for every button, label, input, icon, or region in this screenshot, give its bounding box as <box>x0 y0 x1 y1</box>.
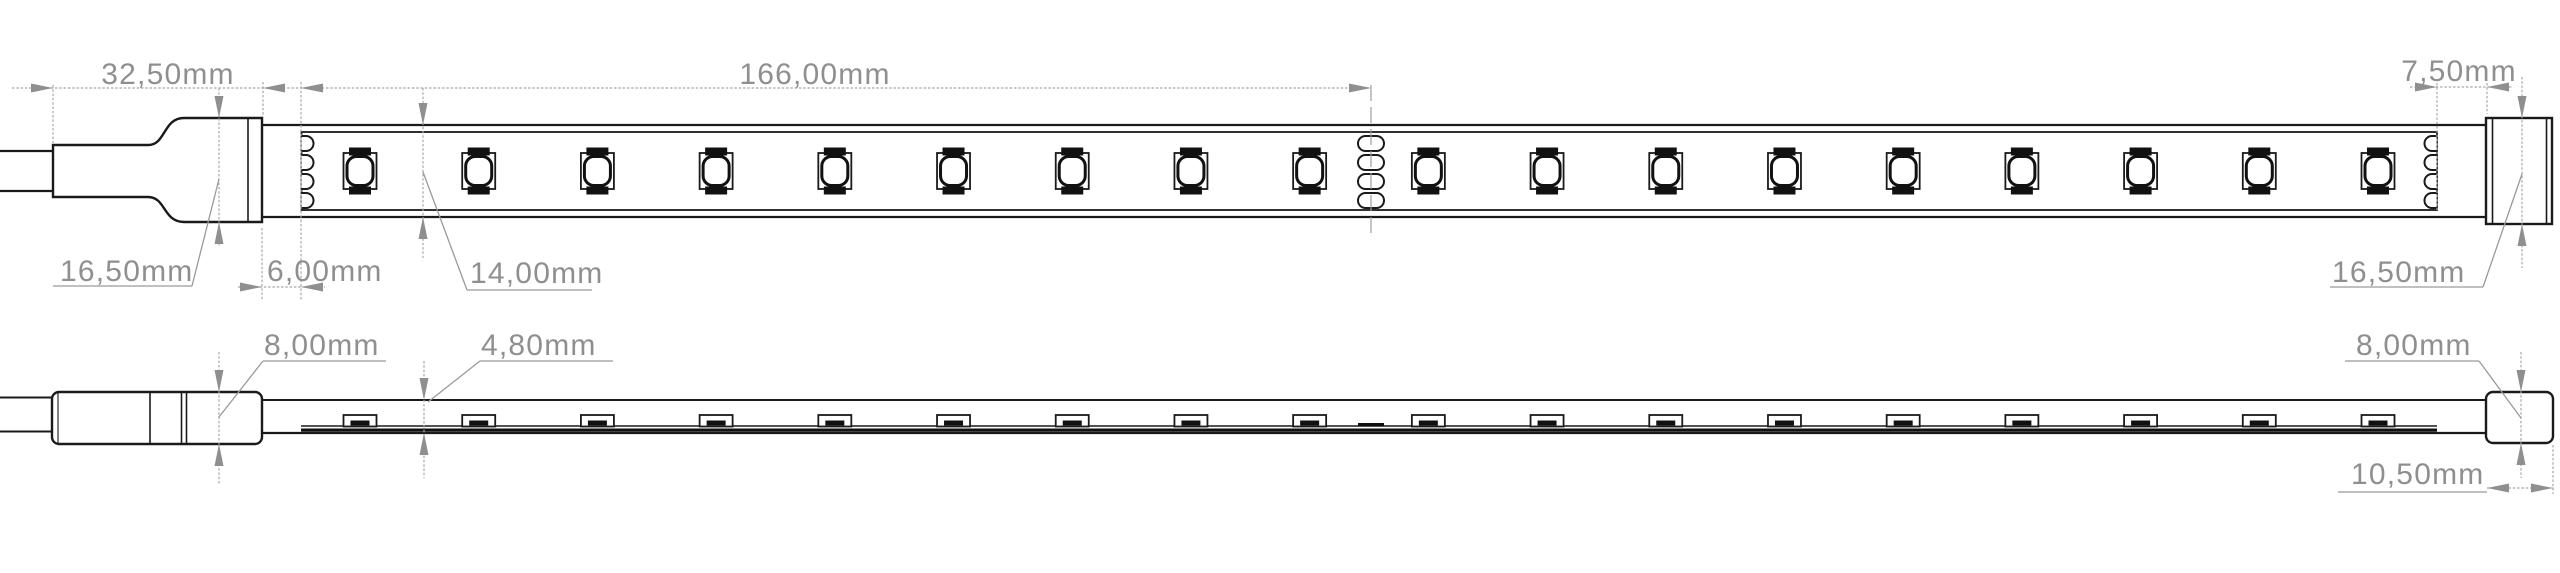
dim-label-lead-in: 6,00mm <box>267 255 383 288</box>
led-side <box>1649 415 1682 427</box>
arrowhead <box>419 217 428 239</box>
arrowhead <box>2517 370 2526 392</box>
led-side <box>2243 415 2276 427</box>
dim-label-end-cap-width: 16,50mm <box>2332 256 2465 289</box>
led-top <box>818 148 851 195</box>
led-top <box>1531 148 1564 195</box>
led-side <box>700 415 733 427</box>
led-top <box>462 148 495 195</box>
arrowhead <box>240 283 262 292</box>
led-top <box>1649 148 1682 195</box>
led-side <box>1174 415 1207 427</box>
side-view-dimensions: 8,00mm 4,80mm 8,00mm 10,50mm <box>215 329 2554 494</box>
power-cable-top <box>0 151 53 191</box>
led-side <box>1531 415 1564 427</box>
led-top <box>937 148 970 195</box>
dim-label-strip-thickness: 4,80mm <box>481 329 597 362</box>
arrowhead <box>420 378 429 400</box>
led-top <box>1056 148 1089 195</box>
led-side <box>2005 415 2038 427</box>
led-top <box>1412 148 1445 195</box>
led-side <box>937 415 970 427</box>
led-top <box>700 148 733 195</box>
connector-plug-top <box>53 118 262 222</box>
led-side <box>344 415 377 427</box>
power-cable-side <box>0 398 54 432</box>
solder-pad <box>302 174 314 189</box>
dim-label-end-offset: 7,50mm <box>2401 55 2517 88</box>
led-top <box>344 148 377 195</box>
led-top <box>2124 148 2157 195</box>
pcb-side <box>301 426 2437 432</box>
led-top <box>1293 148 1326 195</box>
arrowhead <box>419 103 428 125</box>
leader-line <box>428 361 480 402</box>
arrowhead <box>1349 84 1371 93</box>
led-side <box>1768 415 1801 427</box>
led-top <box>1887 148 1920 195</box>
arrowhead <box>2518 224 2527 246</box>
connector-plug-side <box>52 392 262 444</box>
led-top <box>1768 148 1801 195</box>
arrowhead <box>2531 484 2553 493</box>
arrowhead <box>215 370 224 392</box>
solder-pad <box>302 193 314 208</box>
led-side <box>2124 415 2157 427</box>
arrowhead <box>420 433 429 455</box>
led-side <box>1056 415 1089 427</box>
solder-pad <box>2425 193 2437 208</box>
led-side <box>581 415 614 427</box>
solder-pad <box>2425 174 2437 189</box>
led-strip-technical-drawing: 32,50mm 166,00mm 7,50mm 16,50mm 6,00mm 1… <box>0 0 2560 573</box>
led-top <box>1174 148 1207 195</box>
led-side <box>1293 415 1326 427</box>
led-top <box>2243 148 2276 195</box>
arrowhead <box>2517 443 2526 465</box>
arrowhead <box>301 84 323 93</box>
arrowhead <box>31 84 53 93</box>
dim-label-segment-length: 166,00mm <box>739 58 890 91</box>
led-top <box>2362 148 2395 195</box>
dim-label-strip-width: 14,00mm <box>470 257 603 290</box>
dim-label-end-cap-length: 10,50mm <box>2351 458 2484 491</box>
led-top <box>2005 148 2038 195</box>
arrowhead <box>215 444 224 466</box>
dim-label-end-cap-thickness: 8,00mm <box>2356 329 2472 362</box>
dim-label-connector-thickness: 8,00mm <box>264 329 380 362</box>
dim-label-connector-length: 32,50mm <box>101 58 234 91</box>
end-cap-side <box>2486 392 2553 443</box>
arrowhead <box>2487 484 2509 493</box>
arrowhead <box>263 84 285 93</box>
led-side <box>1887 415 1920 427</box>
led-side <box>1412 415 1445 427</box>
cut-pad-side <box>1358 423 1384 426</box>
end-cap-top <box>2486 118 2552 224</box>
solder-pad <box>302 136 314 151</box>
dim-label-connector-width: 16,50mm <box>60 255 193 288</box>
solder-pad <box>302 155 314 170</box>
led-side <box>462 415 495 427</box>
top-view <box>0 85 2552 238</box>
side-view <box>0 392 2553 444</box>
led-side <box>2362 415 2395 427</box>
arrowhead <box>215 222 224 244</box>
led-side <box>818 415 851 427</box>
solder-pad <box>2425 136 2437 151</box>
arrowhead <box>215 96 224 118</box>
solder-pad <box>2425 155 2437 170</box>
arrowhead <box>2518 96 2527 118</box>
led-top <box>581 148 614 195</box>
